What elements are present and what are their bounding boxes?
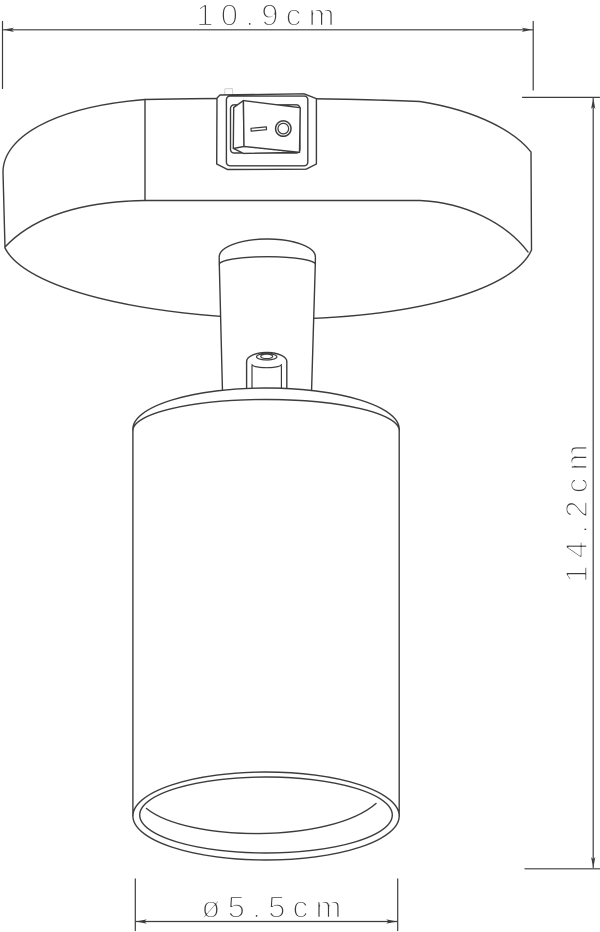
svg-text:10.9cm: 10.9cm (196, 0, 341, 33)
svg-text:ø5.5cm: ø5.5cm (201, 890, 348, 925)
svg-text:14.2cm: 14.2cm (559, 437, 594, 582)
